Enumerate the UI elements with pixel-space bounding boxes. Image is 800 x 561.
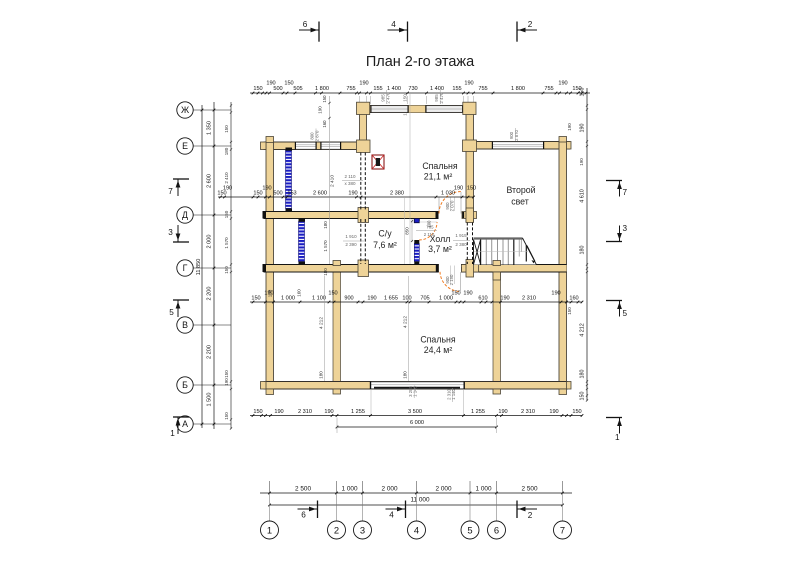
svg-text:С/у: С/у xyxy=(378,229,392,239)
svg-text:2 470: 2 470 xyxy=(439,92,444,104)
svg-text:7: 7 xyxy=(560,524,565,535)
svg-text:190: 190 xyxy=(549,409,558,415)
svg-text:6: 6 xyxy=(303,20,308,29)
svg-text:1 570: 1 570 xyxy=(224,237,229,249)
svg-text:2: 2 xyxy=(334,524,339,535)
svg-text:Холл: Холл xyxy=(430,234,451,244)
svg-text:150: 150 xyxy=(580,392,586,401)
svg-text:1 140: 1 140 xyxy=(413,386,418,397)
svg-text:2 200: 2 200 xyxy=(207,287,213,301)
svg-text:150: 150 xyxy=(253,191,262,197)
svg-text:1 000: 1 000 xyxy=(342,486,358,493)
svg-text:2 000: 2 000 xyxy=(382,486,398,493)
svg-text:2 310: 2 310 xyxy=(298,409,312,415)
svg-text:Д: Д xyxy=(182,210,188,220)
svg-text:1 655: 1 655 xyxy=(384,296,398,302)
svg-text:6 000: 6 000 xyxy=(410,420,424,426)
svg-text:свет: свет xyxy=(511,197,529,207)
svg-text:180: 180 xyxy=(224,147,229,155)
svg-text:21,1 м²: 21,1 м² xyxy=(424,172,453,182)
svg-text:190: 190 xyxy=(223,186,232,192)
svg-text:160: 160 xyxy=(569,296,578,302)
svg-text:1 400: 1 400 xyxy=(430,86,444,92)
svg-text:180: 180 xyxy=(318,371,323,379)
svg-text:190: 190 xyxy=(464,81,473,87)
svg-text:Второй: Второй xyxy=(506,185,535,195)
svg-text:190: 190 xyxy=(551,291,560,297)
svg-text:6: 6 xyxy=(494,524,499,535)
svg-text:705: 705 xyxy=(420,296,429,302)
svg-text:150: 150 xyxy=(467,186,476,192)
svg-text:4 610: 4 610 xyxy=(580,189,586,203)
svg-text:180: 180 xyxy=(580,246,586,255)
svg-text:153: 153 xyxy=(287,191,296,197)
svg-text:Е: Е xyxy=(182,141,188,151)
svg-text:2 390: 2 390 xyxy=(345,242,357,247)
svg-text:3: 3 xyxy=(168,228,173,237)
svg-text:1 500: 1 500 xyxy=(207,393,213,407)
svg-text:160: 160 xyxy=(322,120,327,128)
svg-text:155: 155 xyxy=(452,86,461,92)
svg-text:755: 755 xyxy=(544,86,553,92)
svg-text:Спальня: Спальня xyxy=(420,335,456,345)
svg-text:610: 610 xyxy=(478,296,487,302)
svg-text:150: 150 xyxy=(224,266,229,274)
svg-text:4 212: 4 212 xyxy=(318,317,324,329)
svg-text:500: 500 xyxy=(273,86,282,92)
svg-text:190: 190 xyxy=(498,409,507,415)
svg-text:1 140: 1 140 xyxy=(451,389,456,400)
svg-text:1 100: 1 100 xyxy=(312,296,326,302)
svg-text:190: 190 xyxy=(262,186,271,192)
svg-text:2 310: 2 310 xyxy=(521,409,535,415)
svg-text:11 850: 11 850 xyxy=(196,259,202,276)
svg-text:2 500: 2 500 xyxy=(295,486,311,493)
svg-text:План 2-го этажа: План 2-го этажа xyxy=(366,54,475,70)
svg-text:4: 4 xyxy=(391,20,396,29)
svg-text:190: 190 xyxy=(348,191,357,197)
svg-text:2 870: 2 870 xyxy=(315,130,320,141)
svg-text:150: 150 xyxy=(580,88,586,97)
svg-text:4: 4 xyxy=(389,511,394,520)
svg-text:7,6 м²: 7,6 м² xyxy=(373,240,397,250)
svg-text:150: 150 xyxy=(572,409,581,415)
svg-text:1 915: 1 915 xyxy=(455,233,467,238)
svg-text:3: 3 xyxy=(623,224,628,233)
svg-text:1: 1 xyxy=(170,429,175,438)
svg-text:755: 755 xyxy=(478,86,487,92)
svg-text:24,4 м²: 24,4 м² xyxy=(424,345,453,355)
svg-text:1 255: 1 255 xyxy=(471,409,485,415)
svg-text:190: 190 xyxy=(580,124,586,133)
svg-text:190: 190 xyxy=(266,81,275,87)
svg-text:2 600: 2 600 xyxy=(207,174,213,188)
svg-text:2: 2 xyxy=(528,511,533,520)
svg-text:150: 150 xyxy=(567,307,572,315)
svg-text:7: 7 xyxy=(168,187,173,196)
svg-text:150: 150 xyxy=(403,94,408,102)
svg-text:2: 2 xyxy=(528,20,533,29)
svg-text:11 000: 11 000 xyxy=(410,497,430,504)
svg-text:3,7 м²: 3,7 м² xyxy=(428,244,452,254)
svg-text:190: 190 xyxy=(359,81,368,87)
svg-text:150: 150 xyxy=(284,81,293,87)
svg-text:2 310: 2 310 xyxy=(522,296,536,302)
svg-text:2 470: 2 470 xyxy=(386,92,391,104)
svg-text:1 570: 1 570 xyxy=(323,240,328,252)
svg-text:190: 190 xyxy=(367,296,376,302)
svg-text:150: 150 xyxy=(224,210,229,218)
svg-text:2 410: 2 410 xyxy=(330,175,336,187)
svg-text:3 500: 3 500 xyxy=(408,409,422,415)
svg-text:180: 180 xyxy=(580,370,586,379)
svg-text:6: 6 xyxy=(301,511,306,520)
svg-text:150: 150 xyxy=(253,86,262,92)
svg-text:1 400: 1 400 xyxy=(387,86,401,92)
svg-text:5: 5 xyxy=(623,309,628,318)
svg-text:190: 190 xyxy=(318,106,323,114)
svg-text:190: 190 xyxy=(567,123,572,131)
svg-text:2 110: 2 110 xyxy=(345,174,356,179)
svg-text:2 070: 2 070 xyxy=(449,200,454,211)
svg-text:3: 3 xyxy=(360,524,365,535)
svg-text:150: 150 xyxy=(224,412,229,420)
svg-text:150: 150 xyxy=(322,95,327,103)
svg-text:2 500: 2 500 xyxy=(522,486,538,493)
svg-text:4 212: 4 212 xyxy=(402,316,408,328)
svg-text:2 410: 2 410 xyxy=(224,172,229,184)
svg-text:1 800: 1 800 xyxy=(511,86,525,92)
svg-text:190: 190 xyxy=(274,409,283,415)
svg-text:150: 150 xyxy=(251,296,260,302)
svg-text:2 870: 2 870 xyxy=(514,130,519,141)
svg-text:190: 190 xyxy=(264,291,273,297)
svg-text:1 350: 1 350 xyxy=(207,121,213,135)
svg-text:1: 1 xyxy=(615,433,620,442)
svg-text:755: 755 xyxy=(346,86,355,92)
svg-text:5: 5 xyxy=(169,308,174,317)
svg-text:190: 190 xyxy=(558,81,567,87)
svg-text:1: 1 xyxy=(267,524,272,535)
svg-text:190: 190 xyxy=(224,378,229,386)
svg-text:4 212: 4 212 xyxy=(580,323,586,337)
svg-text:Г: Г xyxy=(183,263,188,273)
svg-text:150: 150 xyxy=(253,409,262,415)
svg-text:4: 4 xyxy=(414,524,419,535)
svg-text:190: 190 xyxy=(579,158,584,166)
svg-text:155: 155 xyxy=(373,86,382,92)
svg-text:2 200: 2 200 xyxy=(207,345,213,359)
svg-text:180: 180 xyxy=(323,221,328,229)
svg-text:180: 180 xyxy=(323,268,328,276)
svg-text:2 000: 2 000 xyxy=(436,486,452,493)
svg-text:1 000: 1 000 xyxy=(281,296,295,302)
svg-text:2 000: 2 000 xyxy=(207,235,213,249)
svg-text:7: 7 xyxy=(623,188,628,197)
svg-text:505: 505 xyxy=(293,86,302,92)
svg-text:1 910: 1 910 xyxy=(345,234,357,239)
svg-text:2 600: 2 600 xyxy=(313,191,327,197)
svg-text:190: 190 xyxy=(324,409,333,415)
svg-text:100: 100 xyxy=(402,296,411,302)
svg-text:1 255: 1 255 xyxy=(351,409,365,415)
svg-text:1 800: 1 800 xyxy=(315,86,329,92)
svg-text:500: 500 xyxy=(273,191,282,197)
svg-text:Спальня: Спальня xyxy=(422,161,458,171)
svg-text:150: 150 xyxy=(328,291,337,297)
svg-text:х 380: х 380 xyxy=(344,181,356,186)
svg-text:850: 850 xyxy=(405,227,410,235)
svg-text:1 000: 1 000 xyxy=(476,486,492,493)
svg-text:150: 150 xyxy=(451,291,460,297)
svg-text:150: 150 xyxy=(224,370,229,378)
svg-text:180: 180 xyxy=(402,371,407,379)
svg-text:190: 190 xyxy=(454,186,463,192)
svg-text:2 190: 2 190 xyxy=(449,274,454,285)
svg-text:Б: Б xyxy=(182,380,188,390)
svg-text:А: А xyxy=(182,419,188,429)
svg-text:900: 900 xyxy=(344,296,353,302)
svg-text:190: 190 xyxy=(500,296,509,302)
svg-text:190: 190 xyxy=(463,291,472,297)
svg-text:100: 100 xyxy=(427,220,432,228)
svg-text:730: 730 xyxy=(408,86,417,92)
svg-text:5: 5 xyxy=(467,524,472,535)
svg-text:2 380: 2 380 xyxy=(455,242,467,247)
svg-text:Ж: Ж xyxy=(181,105,189,115)
svg-text:В: В xyxy=(182,320,188,330)
svg-text:160: 160 xyxy=(297,289,302,297)
svg-text:2 380: 2 380 xyxy=(390,191,404,197)
svg-text:150: 150 xyxy=(224,125,229,133)
